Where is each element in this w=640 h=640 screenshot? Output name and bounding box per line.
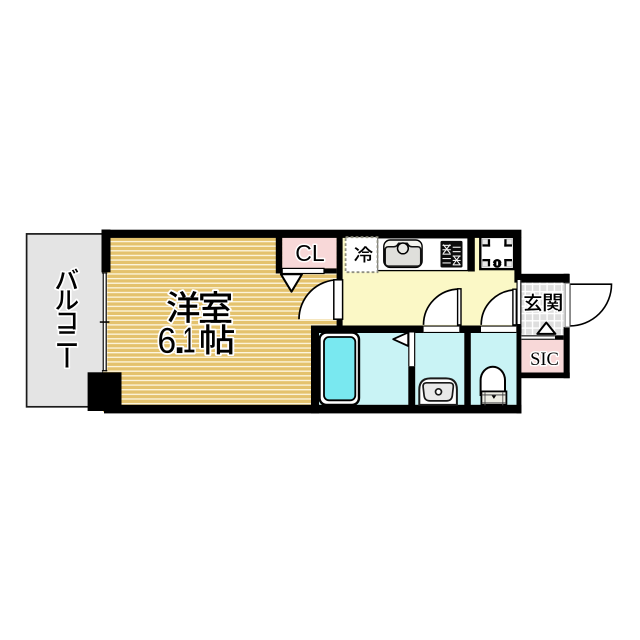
svg-text:CL: CL (295, 240, 325, 266)
svg-text:SIC: SIC (530, 350, 559, 370)
